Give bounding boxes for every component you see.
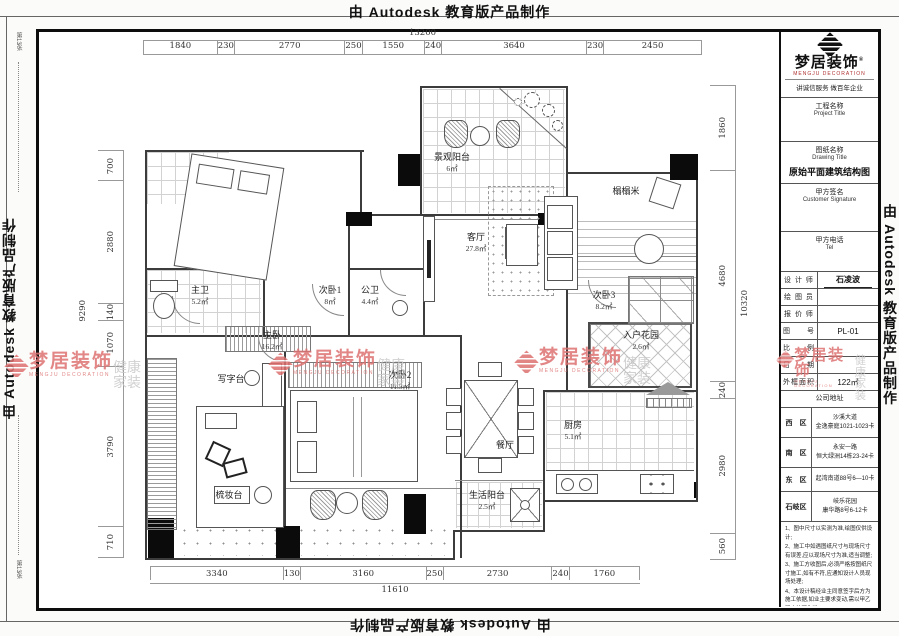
brand-watermark: 梦居装饰 MENGJU DECORATION 健康 家装 bbox=[518, 348, 651, 385]
pillow bbox=[196, 164, 235, 189]
wall-segment bbox=[348, 214, 350, 337]
dining-chair bbox=[478, 458, 502, 473]
tel-label-en: Tel bbox=[781, 245, 878, 251]
district-label: 南 区 bbox=[781, 438, 812, 467]
watermark-tag: 家装 bbox=[377, 373, 405, 388]
dining-chair bbox=[518, 388, 534, 406]
column-block bbox=[670, 154, 698, 180]
wall-segment bbox=[543, 390, 545, 502]
room-label-master-bath: 主卫5.2㎡ bbox=[191, 285, 209, 306]
district-label: 东 区 bbox=[781, 468, 812, 491]
room-label-dresser: 梳妆台 bbox=[215, 490, 242, 502]
room-label-balcony: 景观阳台6㎡ bbox=[434, 152, 470, 173]
watermark-brand: 梦居装饰 bbox=[794, 348, 854, 378]
note-line: 2、施工中如遇图纸尺寸与现场尺寸有误差,应以现场尺寸为准,适当调整; bbox=[785, 543, 874, 560]
wall-segment bbox=[455, 480, 543, 481]
address-row-west: 西 区 沙溪大道 金逸豪庭1021-1023卡 bbox=[781, 408, 878, 438]
column-block bbox=[404, 494, 426, 534]
toilet-bowl bbox=[153, 293, 175, 319]
company-brand-en: MENGJU DECORATION bbox=[781, 71, 878, 77]
bedroom3-wardrobe bbox=[628, 276, 694, 324]
signature-section: 甲方签名 Customer Signature bbox=[781, 184, 878, 232]
coffee-table bbox=[506, 224, 538, 266]
wardrobe-hatch bbox=[147, 358, 177, 530]
address-line: 永安一路 bbox=[813, 444, 877, 452]
note-line: 3、施工方收图后,必须严格按图纸尺寸施工,如有不符,应通知设计人员现场处理; bbox=[785, 561, 874, 587]
watermark-brand-en: MENGJU DECORATION bbox=[293, 370, 377, 376]
bed-bedroom1 bbox=[174, 153, 285, 280]
district-label: 西 区 bbox=[781, 408, 812, 437]
address-line: 起湾南道88号6—10卡 bbox=[813, 475, 877, 483]
armchair bbox=[649, 177, 682, 210]
bay-table bbox=[336, 492, 358, 514]
pillow bbox=[237, 170, 270, 194]
estimator-row: 报 价 师 bbox=[781, 306, 878, 323]
district-label: 石岐区 bbox=[781, 492, 812, 521]
room-label-tatami: 榻榻米 bbox=[612, 186, 639, 198]
address-row-east: 东 区 起湾南道88号6—10卡 bbox=[781, 468, 878, 492]
room-label-utility-balcony: 生活阳台2.5㎡ bbox=[469, 490, 505, 511]
watermark-brand: 梦居装饰 bbox=[539, 348, 623, 367]
entry-arrow-bar bbox=[646, 398, 692, 408]
pillow bbox=[297, 401, 317, 433]
wall-segment bbox=[453, 530, 455, 560]
watermark-tag: 健康 bbox=[377, 358, 405, 373]
room-label-kitchen: 厨房5.1㎡ bbox=[564, 420, 582, 441]
drawing-title: 原始平面建筑结构图 bbox=[781, 165, 878, 178]
mengju-diamond-icon bbox=[268, 352, 292, 376]
designer-row: 设 计 师 石凌波 bbox=[781, 272, 878, 289]
dining-chair bbox=[518, 412, 534, 430]
watermark-tag: 家装 bbox=[113, 375, 141, 390]
dining-chair bbox=[446, 388, 462, 406]
signature-label-en: Customer Signature bbox=[781, 197, 878, 203]
note-line: 1、图中尺寸以实测为准,绘图仅供设计; bbox=[785, 525, 874, 542]
wall-segment bbox=[455, 530, 545, 532]
project-label-en: Project Title bbox=[781, 111, 878, 117]
mengju-diamond-icon bbox=[514, 350, 538, 374]
column-block bbox=[276, 526, 300, 558]
blanket-line bbox=[353, 397, 354, 477]
wall-segment bbox=[360, 150, 362, 218]
entry-arrow-icon bbox=[646, 382, 690, 395]
washer-door bbox=[520, 500, 530, 510]
wall-segment bbox=[545, 500, 698, 502]
dining-chair bbox=[446, 436, 462, 454]
watermark-tag: 健康 bbox=[623, 356, 651, 371]
address-line: 金逸豪庭1021-1023卡 bbox=[813, 423, 877, 431]
tel-section: 甲方电话 Tel bbox=[781, 232, 878, 272]
row-label: 图 号 bbox=[781, 323, 818, 339]
column-block bbox=[346, 212, 372, 226]
mengju-diamond-logo-icon bbox=[817, 32, 842, 57]
column-block bbox=[398, 154, 420, 186]
tv-icon bbox=[427, 240, 431, 278]
sofa-cushion bbox=[547, 231, 573, 255]
drawing-label-en: Drawing Title bbox=[781, 155, 878, 161]
row-label: 设 计 师 bbox=[781, 272, 818, 288]
watermark-tag: 家装 bbox=[855, 378, 875, 402]
watermark-brand-en: MENGJU DECORATION bbox=[794, 379, 854, 389]
sofa-cushion bbox=[547, 257, 573, 281]
title-block-logo: 梦居装饰® MENGJU DECORATION 讲诚信服务 做百年企业 bbox=[781, 32, 878, 98]
room-label-living: 客厅27.8㎡ bbox=[466, 232, 487, 253]
floor-plan: 景观阳台6㎡ 榻榻米 客厅27.8㎡ 主卫5.2㎡ 次卧18㎡ 公卫4.4㎡ 主… bbox=[0, 0, 899, 636]
room-label-dining: 餐厅 bbox=[496, 440, 514, 452]
draftsman-row: 绘 图 员 bbox=[781, 289, 878, 306]
pillow bbox=[205, 413, 237, 429]
address-row-shiqi: 石岐区 岐乐花园 康华路8号6-12卡 bbox=[781, 492, 878, 522]
wall-segment bbox=[568, 256, 696, 257]
watermark-tag: 家装 bbox=[623, 371, 651, 386]
watermark-brand: 梦居装饰 bbox=[293, 350, 377, 369]
row-label: 绘 图 员 bbox=[781, 289, 818, 305]
row-value bbox=[818, 306, 878, 322]
wall-segment bbox=[286, 488, 460, 489]
blanket-line bbox=[361, 397, 362, 477]
balcony-chair bbox=[496, 120, 520, 148]
signature-label: 甲方签名 bbox=[816, 189, 844, 196]
room-label-master-bedroom: 主卧16.2㎡ bbox=[262, 330, 283, 351]
door-arc bbox=[380, 270, 406, 296]
row-label: 报 价 师 bbox=[781, 306, 818, 322]
address-line: 岐乐花园 bbox=[813, 498, 877, 506]
toilet-tank bbox=[150, 280, 178, 292]
room-label-bedroom3: 次卧38.2㎡ bbox=[593, 290, 616, 311]
sofa-cushion bbox=[547, 205, 573, 229]
registered-mark: ® bbox=[859, 57, 864, 63]
address-row-south: 南 区 永安一路 恒大绿洲14栋23-24卡 bbox=[781, 438, 878, 468]
room-label-public-bath: 公卫4.4㎡ bbox=[361, 285, 379, 306]
address-line: 康华路8号6-12卡 bbox=[813, 507, 877, 515]
bay-chair bbox=[362, 490, 388, 520]
pillow bbox=[297, 441, 317, 473]
drawing-name-section: 图纸名称 Drawing Title 原始平面建筑结构图 bbox=[781, 142, 878, 184]
title-block: 梦居装饰® MENGJU DECORATION 讲诚信服务 做百年企业 工程名称… bbox=[779, 32, 878, 607]
company-brand: 梦居装饰® bbox=[781, 56, 878, 71]
project-label: 工程名称 bbox=[816, 103, 844, 110]
watermark-tag: 健康 bbox=[113, 360, 141, 375]
mengju-diamond-icon bbox=[4, 354, 28, 378]
note-line: 4、本设计稿经业主同意签字后方为施工依据,如业主要求变动,需以甲乙双方认可为准; bbox=[785, 588, 874, 606]
drawing-number-row: 图 号 PL-01 bbox=[781, 323, 878, 340]
stove bbox=[640, 474, 674, 494]
drawing-number: PL-01 bbox=[818, 323, 878, 339]
bay-chair bbox=[310, 490, 336, 520]
plant-icon bbox=[542, 104, 555, 117]
room-label-desk: 写字台 bbox=[217, 374, 244, 386]
watermark-tag: 健康 bbox=[855, 354, 875, 378]
watermark-brand-en: MENGJU DECORATION bbox=[539, 368, 623, 374]
basin bbox=[392, 300, 408, 316]
project-name-section: 工程名称 Project Title bbox=[781, 98, 878, 142]
brand-watermark: 梦居装饰 MENGJU DECORATION 健康 家装 bbox=[779, 348, 875, 401]
balcony-chair bbox=[444, 120, 468, 148]
wall-segment bbox=[145, 150, 364, 152]
room-label-bedroom1: 次卧18㎡ bbox=[319, 285, 342, 306]
drawing-label: 图纸名称 bbox=[816, 147, 844, 154]
watermark-brand-en: MENGJU DECORATION bbox=[29, 372, 113, 378]
wall-segment bbox=[145, 558, 455, 560]
kitchen-sink bbox=[556, 474, 598, 494]
plant-icon bbox=[514, 98, 522, 106]
wall-segment bbox=[543, 500, 545, 532]
company-slogan: 讲诚信服务 做百年企业 bbox=[785, 79, 874, 92]
balcony-table bbox=[470, 126, 490, 146]
notes-section: 1、图中尺寸以实测为准,绘图仅供设计; 2、施工中如遇图纸尺寸与现场尺寸有误差,… bbox=[781, 522, 878, 606]
wall-segment bbox=[696, 172, 698, 502]
tel-label: 甲方电话 bbox=[816, 237, 844, 244]
tatami-table bbox=[634, 234, 664, 264]
sofa bbox=[544, 196, 578, 290]
plant-icon bbox=[552, 120, 563, 131]
bed-bedroom2 bbox=[290, 390, 418, 482]
watermark-brand: 梦居装饰 bbox=[29, 352, 113, 371]
sink-basin bbox=[579, 478, 592, 491]
brand-watermark: 梦居装饰 MENGJU DECORATION 健康 家装 bbox=[272, 350, 405, 387]
desk-stool bbox=[244, 370, 260, 386]
address-line: 恒大绿洲14栋23-24卡 bbox=[813, 453, 877, 461]
plant-icon bbox=[524, 92, 540, 108]
designer-name: 石凌波 bbox=[824, 272, 872, 288]
address-line: 沙溪大道 bbox=[813, 414, 877, 422]
row-value bbox=[818, 289, 878, 305]
dining-chair bbox=[446, 412, 462, 430]
dining-chair bbox=[518, 436, 534, 454]
brand-watermark: 梦居装饰 MENGJU DECORATION 健康 家装 bbox=[8, 352, 141, 389]
sink-basin bbox=[561, 478, 574, 491]
washing-machine bbox=[510, 488, 540, 522]
dresser-stool bbox=[254, 486, 272, 504]
dining-chair bbox=[478, 362, 502, 377]
mengju-diamond-icon bbox=[776, 350, 794, 368]
